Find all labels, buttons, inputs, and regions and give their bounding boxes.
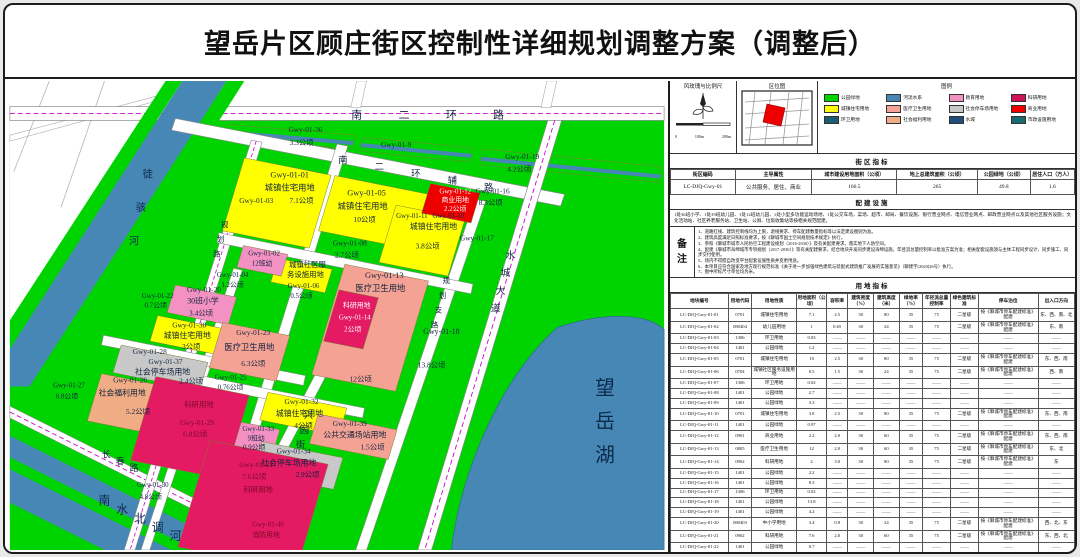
table-cell: 东、南 bbox=[1038, 321, 1074, 334]
map-label: 科研用地 bbox=[343, 301, 371, 310]
map-label: 8.3公顷 bbox=[479, 198, 504, 207]
map-label: 规 bbox=[221, 220, 229, 229]
map-label: Gwy-01-19 bbox=[505, 152, 539, 161]
panel-top-row: 风玫瑰与比例尺 0100m200m 区位图 bbox=[670, 81, 1075, 154]
table-cell: 2.7 bbox=[797, 389, 827, 399]
map-label: Gwy-01-02 bbox=[248, 250, 280, 257]
map-label: 6.8公顷 bbox=[183, 430, 208, 439]
map-label: 骇 bbox=[136, 201, 146, 214]
column-header: 地块编号 bbox=[671, 294, 729, 309]
table-cell: 公园绿地 bbox=[752, 498, 797, 508]
table-cell: —— bbox=[978, 389, 1038, 399]
table-cell: —— bbox=[923, 389, 951, 399]
map-label: Gwy-01-36 bbox=[288, 125, 322, 134]
table-cell: 75 bbox=[923, 517, 951, 530]
location-map-cell: 区位图 bbox=[737, 81, 818, 153]
map-label: Gwy-01-25 bbox=[215, 375, 247, 382]
table-cell: —— bbox=[923, 334, 951, 344]
map-label: 城镇住宅用地 bbox=[164, 330, 211, 340]
column-header: 城市建设用地面积（公顷） bbox=[812, 170, 897, 180]
table-cell: —— bbox=[827, 334, 848, 344]
map-label: 2.9公顷 bbox=[295, 470, 320, 479]
table-cell: 按《聊城市停车配建标准》配建 bbox=[978, 321, 1038, 334]
column-header: 停车泊位 bbox=[978, 294, 1038, 309]
table-cell: LC-DJQ-Gwy-01-01 bbox=[671, 309, 729, 322]
table-cell: 35 bbox=[899, 456, 923, 469]
map-label: 30班小学 bbox=[187, 296, 219, 306]
table-cell: 中小学用地 bbox=[752, 517, 797, 530]
scale-bar-labels: 0100m200m bbox=[675, 134, 731, 139]
legend-cell: 图例 公园绿地河流水系教育用地科研用地城镇住宅用地医疗卫生用地社会停车场用地商业… bbox=[818, 81, 1075, 153]
table-cell: LC-DJQ-Gwy-01-05 bbox=[671, 353, 729, 366]
notes-label: 备注 bbox=[670, 227, 695, 277]
table-cell: 商业用地 bbox=[752, 431, 797, 444]
table-cell: —— bbox=[1038, 344, 1074, 354]
table-cell: 0.03 bbox=[797, 334, 827, 344]
map-label: 0.9公顷 bbox=[243, 443, 265, 451]
table-cell: LC-DJQ-Gwy-01-04 bbox=[671, 344, 729, 354]
map-label: 水 bbox=[116, 503, 128, 517]
table-cell: 公园绿地 bbox=[752, 543, 797, 552]
legend-label: 市政设施用地 bbox=[1028, 117, 1056, 123]
map-label: 城 bbox=[501, 267, 511, 279]
table-cell: 2.2 bbox=[797, 431, 827, 444]
legend-item: 公园绿地 bbox=[824, 94, 882, 102]
table-cell: 30 bbox=[848, 456, 874, 469]
map-label: Gwy-01-34 bbox=[277, 446, 311, 455]
map-label: 3.8公顷 bbox=[416, 242, 441, 251]
table-cell: 2.0 bbox=[827, 530, 848, 543]
legend-label: 社会停车场用地 bbox=[966, 106, 999, 112]
map-label: Gwy-01-05 bbox=[347, 188, 386, 197]
map-label: 二 bbox=[399, 109, 410, 121]
table-cell: 75 bbox=[923, 366, 951, 379]
table-cell: 二星级 bbox=[950, 366, 978, 379]
legend-swatch bbox=[886, 105, 901, 113]
table-cell: 1.6 bbox=[1030, 180, 1074, 195]
table-cell: LC-DJQ-Gwy-01-18 bbox=[671, 498, 729, 508]
table-cell: —— bbox=[827, 389, 848, 399]
table-cell: 80 bbox=[874, 456, 900, 469]
map-label: 2.2公顷 bbox=[444, 205, 466, 213]
legend-grid: 公园绿地河流水系教育用地科研用地城镇住宅用地医疗卫生用地社会停车场用地商业用地环… bbox=[818, 90, 1075, 126]
table-cell: —— bbox=[899, 498, 923, 508]
table-cell: 30 bbox=[848, 321, 874, 334]
map-label: 0.5公顷 bbox=[290, 292, 312, 300]
table-cell: LC-DJQ-Gwy-01-22 bbox=[671, 543, 729, 552]
table-cell: —— bbox=[848, 478, 874, 488]
facilities-text: 1处36班小学、1处39班幼儿园、1处12班幼儿园、1处小型多功能运动场地、1处… bbox=[670, 210, 1075, 227]
table-row: LC-DJQ-Gwy-01-071306环卫用地0.02————————————… bbox=[671, 379, 1075, 389]
table-row: LC-DJQ-Gwy-01-20080403中小学用地3.40.83024357… bbox=[671, 517, 1075, 530]
table-cell: 49.8 bbox=[978, 180, 1031, 195]
table-cell: —— bbox=[827, 543, 848, 552]
table-cell: 30 bbox=[848, 431, 874, 444]
table-cell: 东、西、南 bbox=[1038, 431, 1074, 444]
table-header-row: 街区编码主导属性城市建设用地面积（公顷）地上总建筑面积（公顷）公园绿地（公顷）居… bbox=[671, 170, 1075, 180]
table-cell: 2.5 bbox=[827, 353, 848, 366]
table-cell: 二星级 bbox=[950, 408, 978, 421]
legend-label: 商业用地 bbox=[1028, 106, 1047, 112]
table-cell: —— bbox=[923, 421, 951, 431]
table-cell: 3.0 bbox=[827, 456, 848, 469]
table-cell: 0902 bbox=[728, 530, 752, 543]
column-header: 建筑密度（%） bbox=[848, 294, 874, 309]
legend-swatch bbox=[1011, 116, 1026, 124]
map-label: 徒 bbox=[143, 168, 154, 181]
map-label: Gwy-01-22 bbox=[142, 293, 174, 300]
legend-swatch bbox=[824, 116, 839, 124]
table-cell: —— bbox=[978, 543, 1038, 552]
table-row: LC-DJQ-Gwy-01-02080404幼儿园用地10.6530243575… bbox=[671, 321, 1075, 334]
table-cell: 75 bbox=[923, 530, 951, 543]
table-cell: 30 bbox=[848, 530, 874, 543]
map-label: 7.6公顷 bbox=[242, 472, 267, 481]
column-header: 用地性质 bbox=[752, 294, 797, 309]
table-cell: —— bbox=[827, 508, 848, 518]
table-cell: —— bbox=[1038, 478, 1074, 488]
map-label: 医疗卫生用地 bbox=[355, 283, 406, 293]
table-cell: 0701 bbox=[728, 353, 752, 366]
table-cell: —— bbox=[848, 398, 874, 408]
table-row: LC-DJQ-Gwy-01-140902科研用地23.030803575二星级按… bbox=[671, 456, 1075, 469]
table-row: LC-DJQ-Gwy-01公共服务、居住、商业166.526549.81.6 bbox=[671, 180, 1075, 195]
legend-item: 医疗卫生用地 bbox=[886, 105, 944, 113]
table-cell: 35 bbox=[899, 353, 923, 366]
table-cell: —— bbox=[874, 508, 900, 518]
table-cell: —— bbox=[874, 334, 900, 344]
zoning-map: 南二环路南二环辅路徒骇河水城大道兴园街长春路南水北调河望岳湖规划支路规划路Gwy… bbox=[5, 81, 668, 550]
block-indicators-table: 街区编码主导属性城市建设用地面积（公顷）地上总建筑面积（公顷）公园绿地（公顷）居… bbox=[670, 169, 1075, 195]
table-cell: 按《聊城市停车配建标准》配建 bbox=[978, 353, 1038, 366]
column-header: 主导属性 bbox=[735, 170, 812, 180]
map-label: 消防用地 bbox=[252, 530, 280, 539]
table-cell: —— bbox=[874, 398, 900, 408]
location-map-title: 区位图 bbox=[737, 81, 817, 90]
table-cell: 35 bbox=[899, 530, 923, 543]
map-label: 南 bbox=[99, 494, 111, 508]
map-label: Gwy-01-06 bbox=[288, 283, 320, 290]
table-cell: —— bbox=[978, 379, 1038, 389]
table-cell: —— bbox=[874, 478, 900, 488]
table-cell: 按《聊城市停车配建标准》配建 bbox=[978, 456, 1038, 469]
table-cell: —— bbox=[827, 498, 848, 508]
table-cell: 科研用地 bbox=[752, 456, 797, 469]
table-cell: 东、西、北 bbox=[1038, 530, 1074, 543]
page-title: 望岳片区顾庄街区控制性详细规划调整方案（调整后） bbox=[204, 22, 876, 61]
map-label: 长 bbox=[102, 448, 111, 459]
table-cell: —— bbox=[978, 478, 1038, 488]
table-row: LC-DJQ-Gwy-01-191401公园绿地4.2—————————————… bbox=[671, 508, 1075, 518]
table-cell: 2.0 bbox=[827, 443, 848, 456]
table-cell: 080404 bbox=[728, 321, 752, 334]
table-cell: LC-DJQ-Gwy-01-10 bbox=[671, 408, 729, 421]
table-cell: —— bbox=[950, 543, 978, 552]
map-label: Gwy-01-38 bbox=[172, 320, 206, 329]
table-cell: 2.5 bbox=[827, 408, 848, 421]
legend-label: 环卫用地 bbox=[841, 117, 860, 123]
map-label: Gwy-01-30 bbox=[137, 482, 169, 489]
table-cell: 按《聊城市停车配建标准》配建 bbox=[978, 309, 1038, 322]
map-label: 望 bbox=[595, 377, 615, 399]
table-cell: 1401 bbox=[728, 398, 752, 408]
table-cell: 环卫用地 bbox=[752, 379, 797, 389]
table-cell: 科研用地 bbox=[752, 530, 797, 543]
map-label: 商业用地 bbox=[441, 195, 469, 204]
table-cell: 35 bbox=[899, 408, 923, 421]
map-label: 路 bbox=[130, 462, 139, 473]
table-cell: —— bbox=[827, 379, 848, 389]
table-cell: 城镇社区服务设施用地 bbox=[752, 366, 797, 379]
map-label: 城镇住宅用地 bbox=[265, 182, 316, 192]
table-row: LC-DJQ-Gwy-01-161401公园绿地8.3—————————————… bbox=[671, 478, 1075, 488]
table-cell: LC-DJQ-Gwy-01-08 bbox=[671, 389, 729, 399]
table-cell: 公共服务、居住、商业 bbox=[735, 180, 812, 195]
map-label: 9班幼 bbox=[248, 434, 265, 443]
legend-swatch bbox=[949, 105, 964, 113]
map-label: 4.8公顷 bbox=[140, 493, 162, 501]
table-cell: —— bbox=[848, 498, 874, 508]
table-cell: 1.5 bbox=[827, 366, 848, 379]
map-label: 城镇社区服 bbox=[289, 260, 327, 269]
table-cell: —— bbox=[923, 478, 951, 488]
table-cell: 2.5 bbox=[827, 309, 848, 322]
map-label: Gwy-01-12 bbox=[439, 188, 471, 195]
table-cell: 1401 bbox=[728, 421, 752, 431]
table-cell: —— bbox=[950, 344, 978, 354]
legend-item: 教育用地 bbox=[949, 94, 1007, 102]
table-cell: 按《聊城市停车配建标准》配建 bbox=[978, 431, 1038, 444]
map-label: 1.2公顷 bbox=[221, 281, 243, 289]
table-row: LC-DJQ-Gwy-01-181401公园绿地13.8————————————… bbox=[671, 498, 1075, 508]
table-cell: 30 bbox=[848, 408, 874, 421]
map-label: Gwy-01-18 bbox=[423, 327, 459, 336]
table-cell: 西、北、东 bbox=[1038, 517, 1074, 530]
map-label: Gwy-01-13 bbox=[365, 271, 404, 280]
table-cell: LC-DJQ-Gwy-01 bbox=[671, 180, 736, 195]
table-cell: LC-DJQ-Gwy-01-17 bbox=[671, 488, 729, 498]
column-header: 容积率 bbox=[827, 294, 848, 309]
legend-swatch bbox=[824, 105, 839, 113]
table-cell: —— bbox=[874, 379, 900, 389]
landuse-indicators-title: 用地指标 bbox=[670, 278, 1075, 293]
map-label: 规 bbox=[443, 276, 451, 285]
table-cell: —— bbox=[1038, 508, 1074, 518]
table-cell: —— bbox=[978, 508, 1038, 518]
table-cell: —— bbox=[899, 389, 923, 399]
page-frame: 望岳片区顾庄街区控制性详细规划调整方案（调整后） bbox=[3, 3, 1077, 554]
table-cell: 城镇住宅用地 bbox=[752, 408, 797, 421]
map-label: 4公顷 bbox=[294, 421, 313, 430]
table-cell: —— bbox=[899, 488, 923, 498]
table-cell: —— bbox=[874, 344, 900, 354]
map-label: 道 bbox=[491, 302, 501, 315]
table-cell: LC-DJQ-Gwy-01-12 bbox=[671, 431, 729, 444]
map-label: Gwy-01-39 bbox=[333, 419, 367, 428]
table-cell: —— bbox=[950, 421, 978, 431]
map-label: 环 bbox=[446, 109, 457, 121]
table-cell: —— bbox=[950, 488, 978, 498]
map-label: 城镇住宅用地 bbox=[338, 201, 389, 211]
notes-list: 1、道路红线、建筑控制线均为上限，退线要求、停车配建数量指标等以法定建设图则为准… bbox=[695, 227, 1075, 277]
map-label: 5.2公顷 bbox=[126, 407, 151, 416]
table-cell: 幼儿园用地 bbox=[752, 321, 797, 334]
table-cell: 13.8 bbox=[797, 498, 827, 508]
map-label: 河 bbox=[169, 529, 181, 543]
table-cell: —— bbox=[848, 344, 874, 354]
table-cell: LC-DJQ-Gwy-01-06 bbox=[671, 366, 729, 379]
table-cell: —— bbox=[923, 398, 951, 408]
map-label: Gwy-01-9 bbox=[381, 140, 412, 149]
table-row: LC-DJQ-Gwy-01-120901商业用地2.22.030603575二星… bbox=[671, 431, 1075, 444]
table-cell: LC-DJQ-Gwy-01-14 bbox=[671, 456, 729, 469]
table-cell: —— bbox=[923, 468, 951, 478]
table-cell: —— bbox=[950, 379, 978, 389]
map-label: 划 bbox=[439, 291, 446, 300]
table-cell: 0.02 bbox=[797, 488, 827, 498]
table-cell: 城镇住宅用地 bbox=[752, 353, 797, 366]
table-cell: 公园绿地 bbox=[752, 389, 797, 399]
table-cell: 1306 bbox=[728, 488, 752, 498]
map-label: Gwy-01-20 bbox=[187, 285, 221, 294]
legend-title: 图例 bbox=[818, 81, 1075, 90]
map-label: 春 bbox=[116, 455, 125, 466]
map-label: 河 bbox=[129, 236, 139, 248]
map-label: Gwy-01-11 bbox=[396, 213, 428, 220]
legend-label: 水域 bbox=[966, 117, 975, 123]
table-cell: —— bbox=[1038, 398, 1074, 408]
map-label: Gwy-01-40 bbox=[252, 521, 284, 528]
column-header: 街区编码 bbox=[671, 170, 736, 180]
table-cell: 0704 bbox=[728, 366, 752, 379]
table-cell: 30 bbox=[848, 353, 874, 366]
content-area: 南二环路南二环辅路徒骇河水城大道兴园街长春路南水北调河望岳湖规划支路规划路Gwy… bbox=[5, 81, 1075, 552]
map-label: 南 bbox=[338, 154, 347, 166]
table-cell: —— bbox=[848, 488, 874, 498]
table-cell: —— bbox=[827, 421, 848, 431]
table-cell: 0.5 bbox=[797, 366, 827, 379]
map-label: Gwy-01-26 bbox=[113, 376, 147, 385]
column-header: 用地面积（公顷） bbox=[797, 294, 827, 309]
table-cell: 75 bbox=[923, 309, 951, 322]
table-cell: LC-DJQ-Gwy-01-20 bbox=[671, 517, 729, 530]
map-label: Gwy-01-16 bbox=[476, 186, 510, 195]
legend-label: 科研用地 bbox=[1028, 95, 1047, 101]
table-cell: 80 bbox=[874, 309, 900, 322]
table-cell: —— bbox=[827, 398, 848, 408]
table-cell: 东 bbox=[1038, 456, 1074, 469]
table-cell: 1 bbox=[797, 321, 827, 334]
table-cell: 265 bbox=[897, 180, 978, 195]
map-label: Gwy-01-32 bbox=[285, 397, 319, 406]
table-cell: 3.8 bbox=[797, 408, 827, 421]
column-header: 出入口方向 bbox=[1038, 294, 1074, 309]
table-cell: 35 bbox=[899, 443, 923, 456]
legend-label: 河流水系 bbox=[903, 95, 922, 101]
table-cell: LC-DJQ-Gwy-01-09 bbox=[671, 398, 729, 408]
table-cell: —— bbox=[827, 344, 848, 354]
location-map-thumbnail bbox=[741, 90, 813, 146]
legend-item: 科研用地 bbox=[1011, 94, 1069, 102]
table-cell: 24 bbox=[874, 366, 900, 379]
table-cell: 60 bbox=[874, 431, 900, 444]
note-line: 4、配建《聊城市海绵城市专项规划（2017-2030）》等有关配建要求，结合地块… bbox=[698, 247, 1072, 258]
map-label: 北 bbox=[134, 511, 146, 525]
table-cell: —— bbox=[1038, 421, 1074, 431]
table-cell: —— bbox=[848, 468, 874, 478]
note-line: 7、图中所标尺寸单位均为米。 bbox=[698, 269, 1072, 275]
table-cell: 1.2 bbox=[797, 344, 827, 354]
table-cell: 公园绿地 bbox=[752, 398, 797, 408]
notes-section: 备注 1、道路红线、建筑控制线均为上限，退线要求、停车配建数量指标等以法定建设图… bbox=[670, 227, 1075, 278]
legend-item: 社会停车场用地 bbox=[949, 105, 1007, 113]
table-cell: LC-DJQ-Gwy-01-07 bbox=[671, 379, 729, 389]
scale-label: 200m bbox=[722, 134, 731, 139]
table-cell: 8.3 bbox=[797, 478, 827, 488]
table-cell: 医疗卫生用地 bbox=[752, 443, 797, 456]
table-cell: 1401 bbox=[728, 344, 752, 354]
column-header: 居住人口（万人） bbox=[1030, 170, 1074, 180]
map-label: 水 bbox=[505, 249, 515, 261]
table-cell: 二星级 bbox=[950, 309, 978, 322]
table-cell: —— bbox=[1038, 468, 1074, 478]
table-row: LC-DJQ-Gwy-01-050701城镇住宅用地102.530803575二… bbox=[671, 353, 1075, 366]
table-cell: —— bbox=[848, 334, 874, 344]
map-label: 科研用地 bbox=[243, 485, 273, 494]
map-label: Gwy-01-29 bbox=[180, 418, 214, 427]
table-cell: 3.4 bbox=[797, 517, 827, 530]
table-row: LC-DJQ-Gwy-01-171306环卫用地0.02————————————… bbox=[671, 488, 1075, 498]
table-cell: 30 bbox=[848, 309, 874, 322]
map-label: 7.1公顷 bbox=[290, 196, 315, 205]
map-label: 社会福利用地 bbox=[99, 387, 146, 397]
table-cell: —— bbox=[848, 379, 874, 389]
table-cell: —— bbox=[950, 334, 978, 344]
table-cell: —— bbox=[899, 344, 923, 354]
table-cell: 0.7 bbox=[797, 543, 827, 552]
legend-label: 社会福利用地 bbox=[903, 117, 931, 123]
windrose-icon bbox=[672, 90, 734, 134]
table-cell: —— bbox=[848, 389, 874, 399]
table-cell: 7.1 bbox=[797, 309, 827, 322]
map-label: 支 bbox=[435, 306, 443, 315]
zoning-map-panel: 南二环路南二环辅路徒骇河水城大道兴园街长春路南水北调河望岳湖规划支路规划路Gwy… bbox=[5, 81, 670, 552]
table-row: LC-DJQ-Gwy-01-151401公园绿地2.2—————————————… bbox=[671, 468, 1075, 478]
column-header: 地上总建筑面积（公顷） bbox=[897, 170, 978, 180]
table-cell: 按《聊城市停车配建标准》配建 bbox=[978, 530, 1038, 543]
legend-label: 城镇住宅用地 bbox=[841, 106, 869, 112]
legend-label: 教育用地 bbox=[966, 95, 985, 101]
map-label: Gwy-01-28 bbox=[133, 347, 167, 356]
table-cell: —— bbox=[1038, 543, 1074, 552]
table-cell: —— bbox=[950, 389, 978, 399]
map-label: 路 bbox=[493, 108, 504, 121]
table-cell: 2.0 bbox=[827, 431, 848, 444]
top-white-strip bbox=[10, 81, 664, 108]
legend-item: 社会福利用地 bbox=[886, 116, 944, 124]
legend-swatch bbox=[1011, 94, 1026, 102]
facilities-title: 配建设施 bbox=[670, 195, 1075, 210]
table-cell: 12 bbox=[797, 443, 827, 456]
table-cell: —— bbox=[978, 468, 1038, 478]
table-cell: 0701 bbox=[728, 408, 752, 421]
windrose-title: 风玫瑰与比例尺 bbox=[670, 81, 736, 90]
map-label: 务设施用地 bbox=[287, 270, 324, 279]
map-label: 划 bbox=[217, 235, 224, 244]
table-row: LC-DJQ-Gwy-01-091401公园绿地3.3—————————————… bbox=[671, 398, 1075, 408]
map-label: 0.76公顷 bbox=[218, 383, 244, 391]
table-cell: 1401 bbox=[728, 543, 752, 552]
